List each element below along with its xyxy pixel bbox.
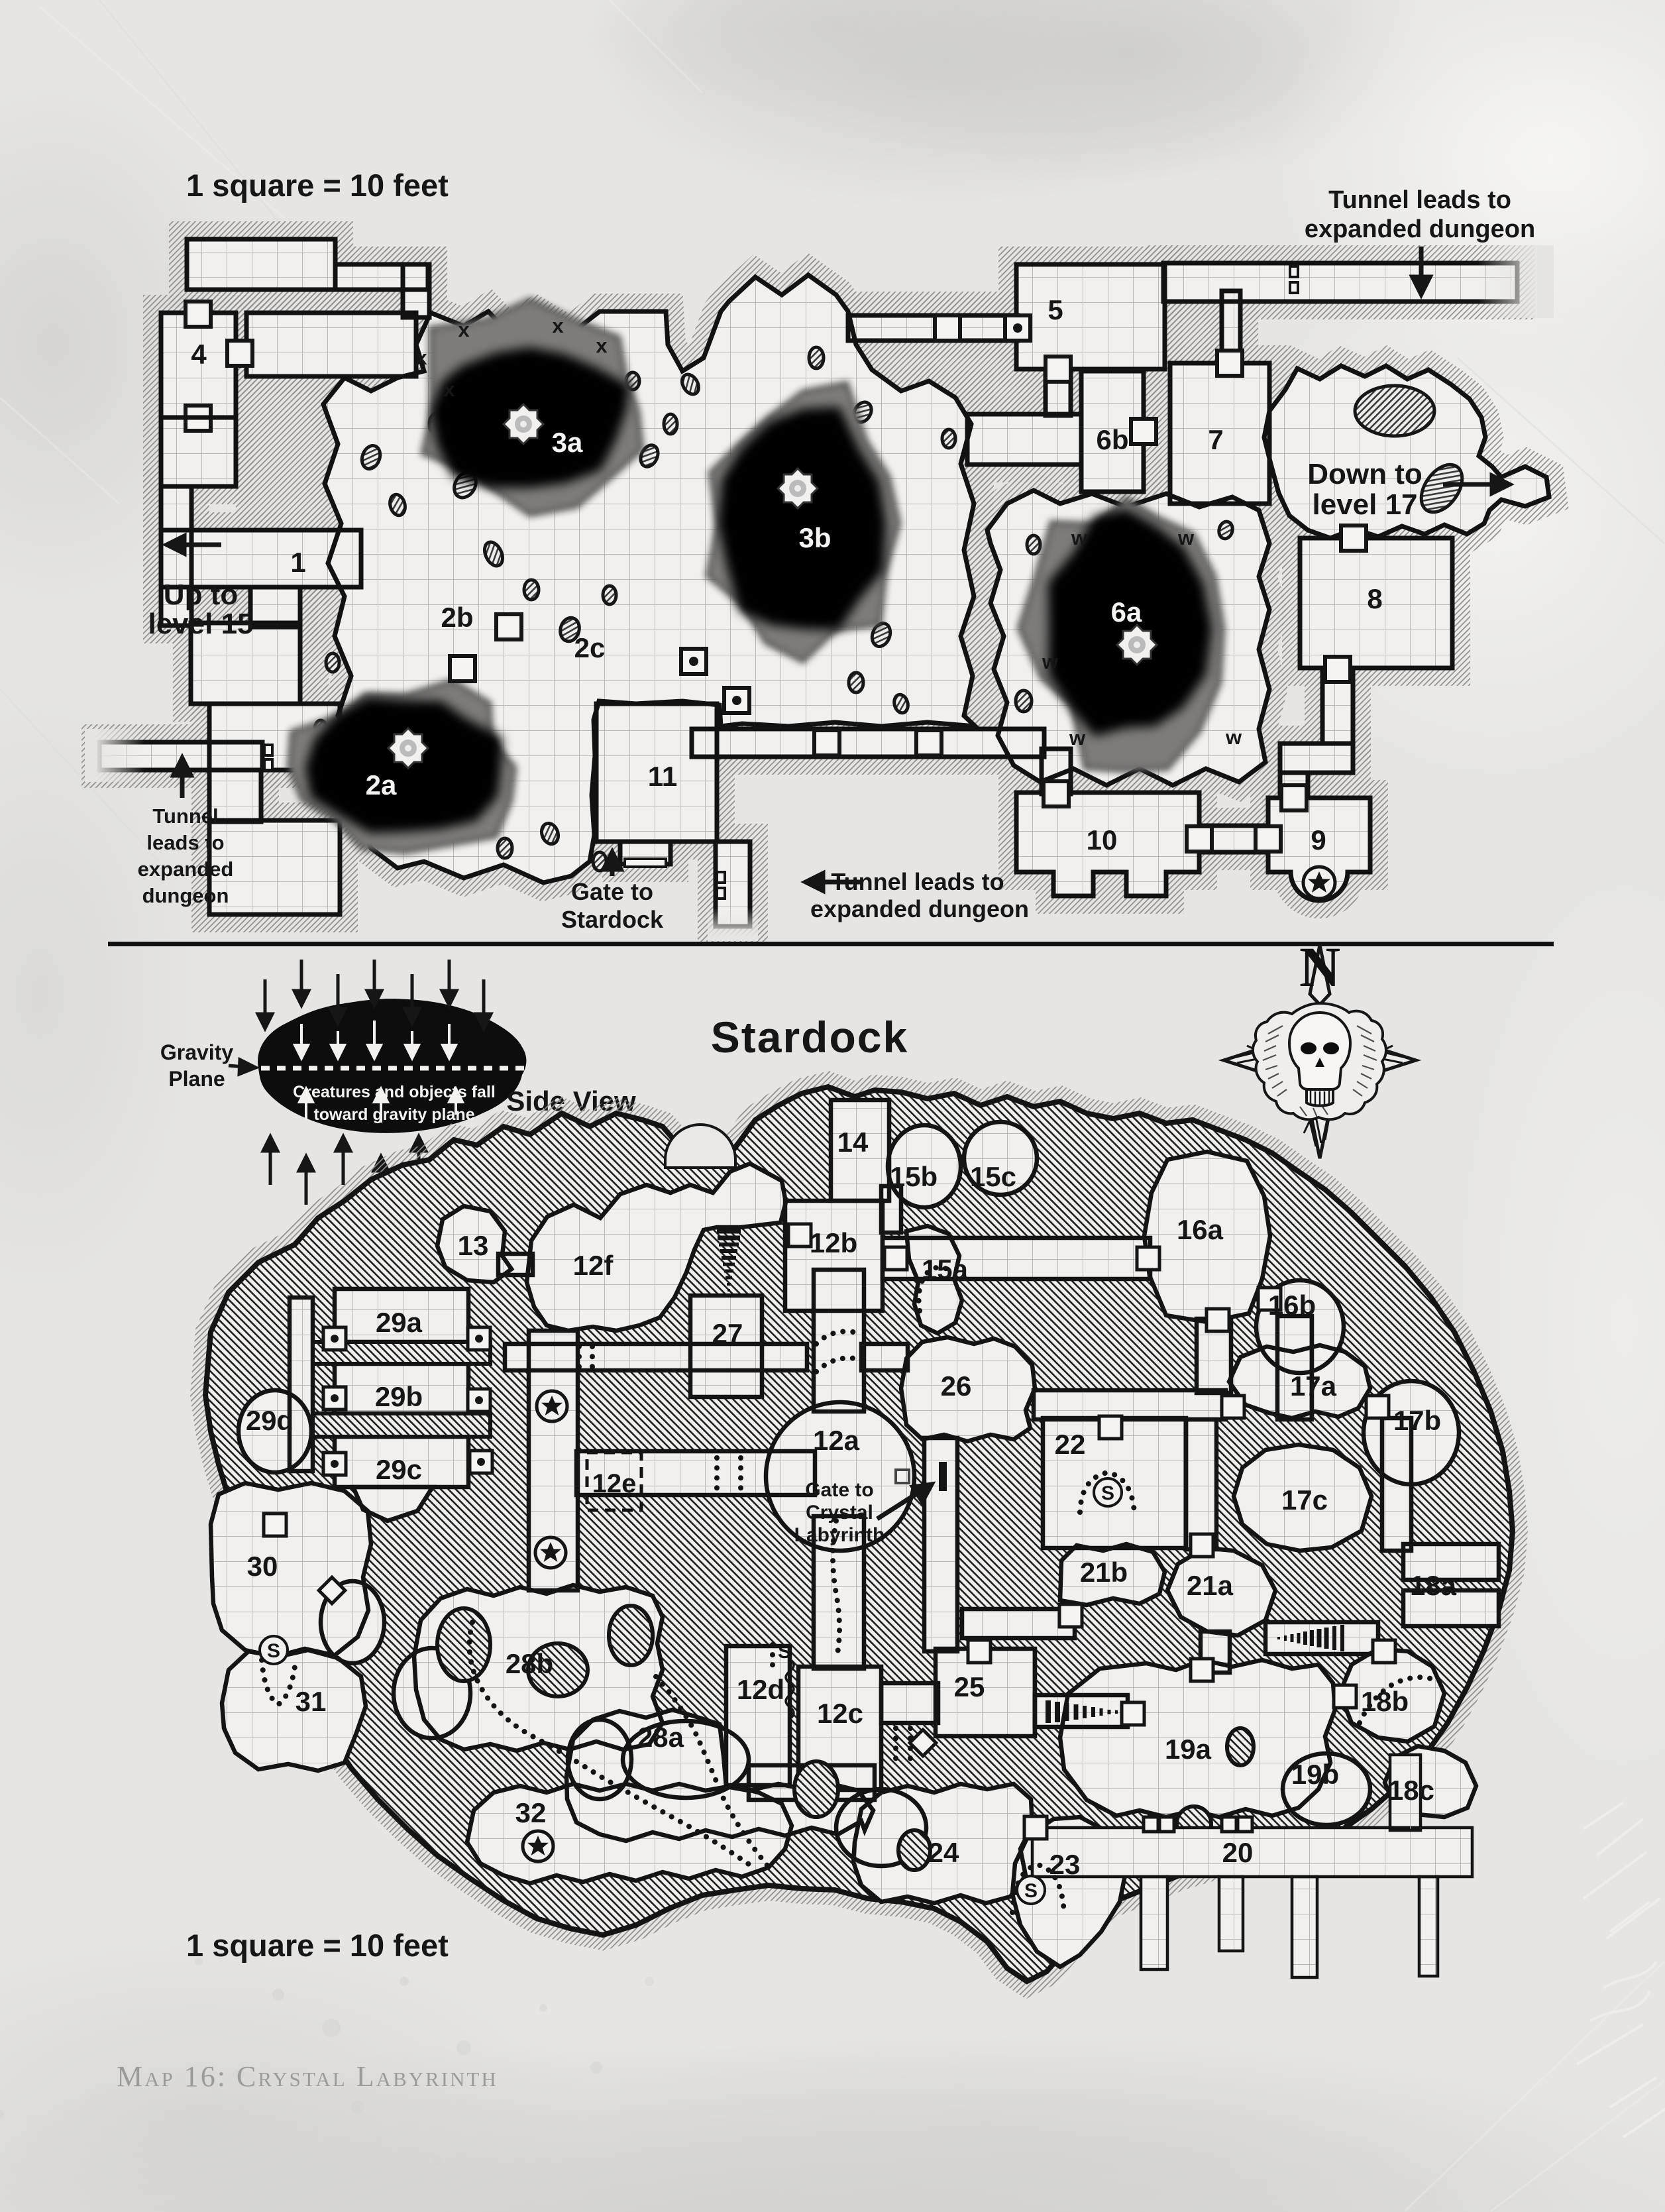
svg-text:expanded: expanded bbox=[138, 857, 234, 881]
svg-text:Tunnel leads to: Tunnel leads to bbox=[1328, 186, 1511, 214]
svg-text:Down to: Down to bbox=[1307, 458, 1423, 490]
svg-text:18c: 18c bbox=[1388, 1775, 1434, 1806]
svg-text:18a: 18a bbox=[1410, 1570, 1457, 1601]
svg-text:expanded dungeon: expanded dungeon bbox=[1305, 215, 1535, 243]
svg-text:10: 10 bbox=[1087, 824, 1118, 856]
svg-text:12f: 12f bbox=[573, 1250, 614, 1281]
svg-text:22: 22 bbox=[1055, 1429, 1086, 1460]
svg-text:28b: 28b bbox=[506, 1648, 553, 1679]
svg-text:w: w bbox=[1069, 726, 1086, 749]
svg-text:2b: 2b bbox=[441, 602, 473, 633]
svg-text:Stardock: Stardock bbox=[711, 1013, 908, 1062]
svg-text:Tunnel: Tunnel bbox=[152, 804, 218, 828]
svg-text:3a: 3a bbox=[552, 427, 583, 458]
svg-text:17c: 17c bbox=[1281, 1484, 1328, 1516]
svg-text:2c: 2c bbox=[574, 632, 606, 663]
svg-text:16a: 16a bbox=[1177, 1214, 1224, 1245]
svg-text:29b: 29b bbox=[375, 1381, 423, 1412]
svg-text:12e: 12e bbox=[592, 1469, 637, 1498]
svg-text:Plane: Plane bbox=[168, 1067, 225, 1091]
svg-text:21b: 21b bbox=[1080, 1557, 1128, 1588]
svg-text:x: x bbox=[552, 314, 564, 337]
svg-text:S: S bbox=[1024, 1880, 1038, 1902]
svg-text:29d: 29d bbox=[246, 1405, 294, 1436]
svg-text:1 square = 10 feet: 1 square = 10 feet bbox=[186, 168, 449, 203]
svg-text:31: 31 bbox=[295, 1686, 327, 1717]
svg-text:w: w bbox=[1042, 650, 1059, 673]
svg-text:Tunnel leads to: Tunnel leads to bbox=[831, 868, 1004, 895]
svg-text:8: 8 bbox=[1367, 583, 1382, 614]
svg-text:3b: 3b bbox=[798, 522, 831, 553]
svg-text:9: 9 bbox=[1311, 824, 1326, 856]
svg-text:6b: 6b bbox=[1096, 424, 1128, 455]
svg-text:30: 30 bbox=[247, 1551, 278, 1582]
svg-text:Crystal: Crystal bbox=[806, 1502, 873, 1523]
svg-text:x: x bbox=[458, 318, 470, 341]
svg-text:Up to: Up to bbox=[164, 579, 238, 611]
svg-text:25: 25 bbox=[954, 1671, 985, 1702]
svg-text:S: S bbox=[1101, 1482, 1114, 1504]
svg-text:12b: 12b bbox=[810, 1227, 857, 1258]
svg-text:x: x bbox=[596, 334, 608, 357]
svg-text:21a: 21a bbox=[1187, 1570, 1234, 1601]
svg-text:24: 24 bbox=[928, 1837, 959, 1868]
svg-text:1: 1 bbox=[290, 547, 305, 578]
svg-text:2a: 2a bbox=[366, 769, 397, 801]
svg-text:13: 13 bbox=[458, 1230, 489, 1261]
svg-text:S: S bbox=[267, 1640, 280, 1662]
svg-text:6a: 6a bbox=[1111, 596, 1142, 628]
svg-text:Creatures and objects fall: Creatures and objects fall bbox=[293, 1083, 496, 1101]
svg-text:Gravity: Gravity bbox=[160, 1040, 233, 1064]
svg-text:toward gravity plane: toward gravity plane bbox=[313, 1105, 474, 1124]
svg-text:Gate to: Gate to bbox=[571, 878, 653, 905]
svg-text:5: 5 bbox=[1047, 294, 1063, 325]
svg-text:Gate to: Gate to bbox=[805, 1479, 873, 1501]
svg-text:level 17: level 17 bbox=[1312, 488, 1417, 521]
svg-text:27: 27 bbox=[712, 1318, 743, 1349]
svg-text:17b: 17b bbox=[1393, 1405, 1441, 1436]
svg-text:x: x bbox=[443, 378, 455, 401]
svg-text:28a: 28a bbox=[637, 1722, 684, 1753]
svg-text:w: w bbox=[1225, 726, 1242, 749]
svg-text:18b: 18b bbox=[1361, 1686, 1409, 1717]
svg-text:20: 20 bbox=[1222, 1837, 1254, 1868]
svg-text:7: 7 bbox=[1208, 424, 1223, 455]
svg-text:level 15: level 15 bbox=[148, 608, 253, 640]
svg-text:23: 23 bbox=[1049, 1849, 1081, 1880]
svg-text:x: x bbox=[415, 346, 427, 369]
svg-text:Stardock: Stardock bbox=[561, 906, 664, 933]
svg-text:12c: 12c bbox=[817, 1698, 863, 1729]
svg-text:S: S bbox=[778, 1641, 791, 1663]
svg-text:4: 4 bbox=[191, 339, 207, 370]
svg-text:29c: 29c bbox=[376, 1454, 422, 1485]
svg-text:29a: 29a bbox=[376, 1307, 423, 1338]
svg-text:w: w bbox=[1071, 526, 1088, 549]
svg-text:15b: 15b bbox=[890, 1161, 938, 1192]
svg-text:12a: 12a bbox=[813, 1425, 860, 1456]
svg-text:leads to: leads to bbox=[146, 831, 224, 854]
svg-text:14: 14 bbox=[837, 1127, 869, 1158]
svg-text:11: 11 bbox=[648, 761, 677, 792]
svg-text:15a: 15a bbox=[922, 1254, 969, 1285]
svg-text:15c: 15c bbox=[970, 1161, 1016, 1192]
svg-text:w: w bbox=[1177, 526, 1195, 549]
svg-text:N: N bbox=[1299, 935, 1340, 999]
svg-text:32: 32 bbox=[515, 1797, 547, 1828]
svg-text:16b: 16b bbox=[1268, 1290, 1316, 1321]
svg-text:12d: 12d bbox=[737, 1674, 784, 1705]
svg-text:19a: 19a bbox=[1165, 1734, 1212, 1765]
svg-text:26: 26 bbox=[941, 1370, 972, 1402]
svg-text:1 square = 10 feet: 1 square = 10 feet bbox=[186, 1928, 449, 1963]
svg-text:expanded dungeon: expanded dungeon bbox=[810, 895, 1029, 922]
svg-text:17a: 17a bbox=[1290, 1370, 1337, 1402]
svg-text:dungeon: dungeon bbox=[142, 884, 229, 907]
svg-text:Labyrinth: Labyrinth bbox=[794, 1524, 885, 1546]
svg-text:Map 16: Crystal Labyrinth: Map 16: Crystal Labyrinth bbox=[117, 2060, 498, 2093]
svg-text:19b: 19b bbox=[1291, 1759, 1339, 1790]
